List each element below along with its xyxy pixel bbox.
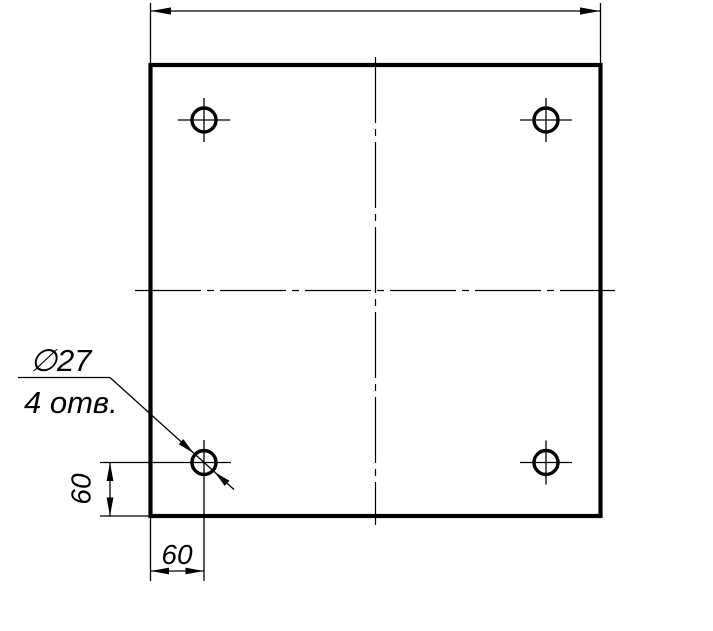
hole-top-right [520, 98, 572, 142]
top-dimension-arrow-left [151, 7, 171, 14]
left-dimension-value: 60 [66, 473, 97, 505]
top-dimension-arrow-right [580, 7, 600, 14]
drawing-sheet: 60 60 ∅27 4 отв. [0, 0, 713, 631]
hole-diameter-label: ∅27 [30, 343, 93, 378]
hole-count-label: 4 отв. [24, 385, 118, 420]
hole-callout: ∅27 4 отв. [18, 343, 234, 490]
bottom-dimension-value: 60 [161, 539, 193, 570]
hole-bottom-right [520, 441, 572, 485]
drawing-canvas: 60 60 ∅27 4 отв. [0, 0, 713, 631]
hole-top-left [178, 98, 230, 142]
left-dimension-arrow-up [107, 463, 114, 482]
left-dimension-arrow-down [107, 498, 114, 517]
bottom-dimension: 60 [151, 518, 205, 581]
top-dimension [151, 3, 601, 63]
left-dimension: 60 [66, 463, 151, 517]
